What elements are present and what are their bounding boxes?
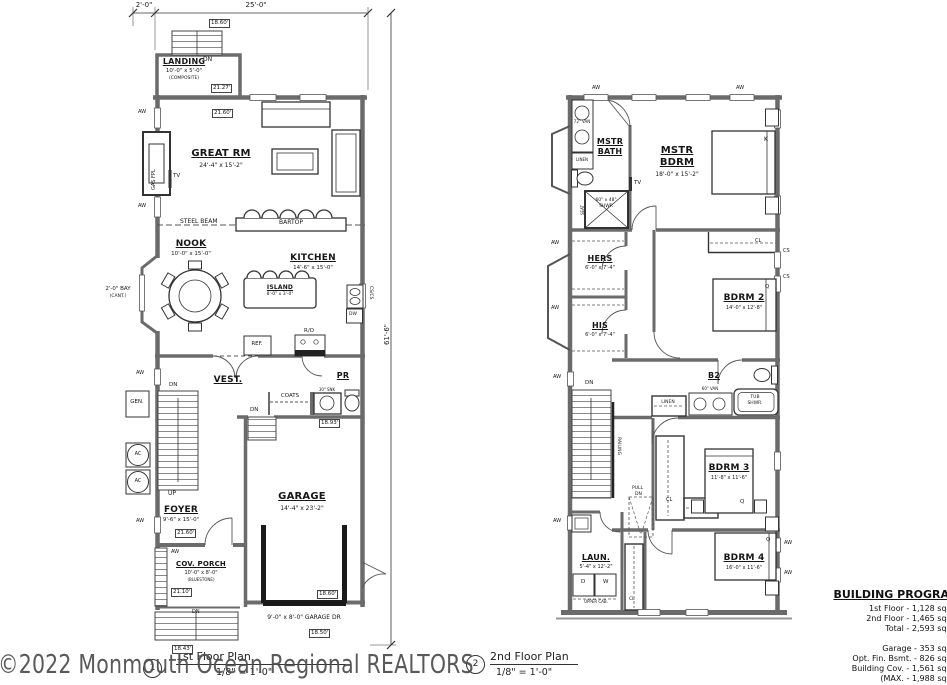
- bay-label2: (CANT.): [110, 295, 127, 300]
- room-laun: LAUN.: [582, 554, 610, 562]
- van60-label: 60" VAN: [702, 387, 718, 391]
- king-bed-label: K: [764, 137, 768, 143]
- building-program-title: BUILDING PROGRAM: [822, 588, 947, 601]
- room-garage: GARAGE: [278, 492, 326, 503]
- room-his: HIS: [592, 322, 608, 330]
- shwr-label: SHWR: [599, 205, 613, 210]
- shwr-size-label: 60" x 48": [595, 199, 616, 204]
- dn-label-landing: DN: [203, 57, 212, 63]
- ref-label: REF.: [251, 342, 262, 348]
- dn-label-porch: DN: [192, 610, 200, 615]
- building-program: BUILDING PROGRAM 1st Floor - 1,128 sq. f…: [822, 588, 947, 684]
- room-kitchen: KITCHEN: [290, 254, 336, 263]
- program-line: 1st Floor - 1,128 sq. ft.: [822, 604, 947, 614]
- elev-box: 21.27': [211, 84, 232, 93]
- aw-label: AW: [136, 371, 144, 376]
- floorplan-sheet: 2'-0" 25'-0" 61'-6" LANDING 10'-0" x 5'-…: [0, 0, 947, 685]
- plan-linework: [0, 0, 947, 685]
- nook-table: [161, 261, 228, 331]
- floor2-beds: [692, 109, 779, 595]
- aw-label: AW: [784, 541, 792, 546]
- room-landing-size: 10'-0" x 5'-0": [166, 69, 202, 75]
- elev-box: 21.60': [175, 529, 196, 538]
- washer-label: W: [603, 580, 608, 586]
- aw-label: AW: [736, 86, 744, 91]
- room-great: GREAT RM: [191, 149, 250, 160]
- aw-label: AW: [171, 550, 179, 555]
- program-line: Total - 2,593 sq. ft.: [822, 624, 947, 634]
- gas-fpl-label: GAS FPL: [152, 169, 157, 190]
- room-nook: NOOK: [176, 240, 207, 249]
- up-label: UP: [168, 491, 176, 497]
- elev-box: 18.93': [319, 419, 340, 428]
- great-room-furniture: [262, 102, 360, 196]
- room-laun-size: 5'-4" x 12'-2": [579, 565, 612, 570]
- steel-beam-label: STEEL BEAM: [180, 219, 218, 225]
- upper-cab-label: UPPER CAB.: [584, 600, 608, 604]
- elev-box: 18.60': [209, 19, 230, 28]
- gen-label: GEN.: [130, 400, 144, 406]
- cscs-label: CS/CS: [367, 286, 372, 300]
- aw-label: AW: [138, 204, 146, 209]
- ac-label-1: AC: [135, 452, 142, 457]
- cl-label: CL: [666, 498, 672, 503]
- queen-bed-label: Q: [766, 538, 770, 544]
- room-great-size: 24'-4" x 15'-2": [199, 163, 242, 169]
- aw-label: AW: [784, 571, 792, 576]
- queen-bed-label: Q: [740, 500, 744, 506]
- room-mbath-1: MSTR: [597, 138, 623, 146]
- cl-label: CL: [755, 239, 761, 244]
- dryer-label: D: [581, 580, 585, 586]
- room-landing-note: (COMPOSITE): [169, 77, 199, 82]
- room-nook-size: 10'-0" x 15'-0": [171, 252, 211, 258]
- garage-door-label: 9'-0" x 8'-0" GARAGE DR: [267, 615, 341, 621]
- room-bdrm2: BDRM 2: [724, 294, 765, 303]
- cl-label: CL: [629, 598, 635, 603]
- queen-bed-label: Q: [765, 285, 769, 291]
- room-vest: VEST.: [214, 376, 243, 385]
- room-mbdrm-2: BDRM: [660, 158, 694, 169]
- room-mbdrm-1: MSTR: [661, 146, 693, 157]
- snk-label: 30" SNK: [319, 388, 335, 392]
- elev-box: 21.10': [171, 588, 192, 597]
- pull-dn-label-1: PULL: [632, 487, 643, 492]
- room-kitchen-size: 14'-6" x 15'-0": [293, 266, 333, 272]
- dim-top-left: 2'-0": [136, 2, 153, 9]
- room-hers: HERS: [588, 255, 613, 263]
- pull-dn-label-2: DN: [635, 493, 642, 498]
- tv-label-f2: TV: [634, 181, 641, 187]
- elev-box: 18.50': [309, 629, 330, 638]
- room-mbdrm-size: 18'-0" x 15'-2": [655, 172, 698, 178]
- dim-right: 61'-6": [384, 324, 391, 345]
- room-foyer-size: 9'-6" x 15'-0": [163, 518, 199, 524]
- railing-label: RAILING: [615, 437, 620, 455]
- ro-label: R/O: [304, 329, 314, 335]
- cs-label: CS: [783, 249, 790, 254]
- dn-label-stairs: DN: [169, 383, 177, 389]
- room-bdrm3-size: 11'-8" x 11'-6": [711, 476, 747, 481]
- tub-label-1: TUB: [750, 396, 759, 401]
- plan2-scale: 1/8" = 1'-0": [496, 667, 552, 678]
- cs-label: CS: [783, 275, 790, 280]
- aw-label: AW: [136, 519, 144, 524]
- seat-label: SEAT: [581, 205, 585, 215]
- aw-label: AW: [592, 86, 600, 91]
- island-size: 8'-0" x 3'-0": [267, 293, 294, 298]
- aw-label: AW: [551, 241, 559, 246]
- bartop-label: BARTOP: [279, 220, 303, 226]
- program-line: Building Cov. - 1,561 sq. ft.: [822, 664, 947, 674]
- room-hers-size: 6'-0" x 7'-4": [585, 266, 615, 271]
- room-landing: LANDING: [163, 58, 205, 66]
- room-b2: B2: [708, 372, 720, 380]
- program-line: 2nd Floor - 1,465 sq. ft.: [822, 614, 947, 624]
- aw-label: AW: [553, 519, 561, 524]
- room-bdrm4: BDRM 4: [724, 554, 765, 563]
- dw-label: DW: [349, 313, 357, 318]
- fireplace: [143, 132, 172, 195]
- program-line: (MAX. - 1,988 sq. ft.: [822, 674, 947, 684]
- ac-label-2: AC: [135, 479, 142, 484]
- coats-label: COATS: [281, 394, 299, 400]
- aw-label: AW: [138, 110, 146, 115]
- room-mbath-2: BATH: [598, 148, 623, 156]
- island-label: ISLAND: [267, 285, 293, 291]
- tub-label-2: SHWR.: [747, 402, 762, 407]
- room-porch: COV. PORCH: [176, 561, 226, 568]
- plan2-title: 2nd Floor Plan: [490, 650, 578, 665]
- aw-label: AW: [551, 306, 559, 311]
- linen-label-b2: LINEN: [661, 401, 674, 406]
- dn-label-garage-steps: DN: [250, 408, 258, 414]
- room-bdrm2-size: 14'-0" x 12'-8": [726, 306, 762, 311]
- room-pr: PR: [337, 372, 349, 380]
- copyright-watermark: ©2022 Monmouth Ocean Regional REALTORS: [0, 649, 474, 679]
- van72-label: 72" VAN: [574, 120, 590, 124]
- room-his-size: 6'-0" x 7'-4": [585, 333, 615, 338]
- room-garage-size: 14'-4" x 23'-2": [280, 506, 323, 512]
- room-porch-note: (BLUESTONE): [188, 578, 215, 582]
- dim-top-main: 25'-0": [245, 2, 266, 9]
- linen-label-mbath: LINEN: [576, 158, 588, 162]
- floor1-stair-arrows: [178, 31, 197, 640]
- program-line: Garage - 353 sq. ft.: [822, 644, 947, 654]
- bay-label: 2'-0" BAY: [105, 287, 130, 293]
- dn-label-stairs2: DN: [585, 381, 593, 387]
- tv-label-f1: TV: [173, 174, 180, 180]
- elev-box: 18.60': [317, 590, 338, 599]
- room-foyer: FOYER: [164, 506, 198, 515]
- elev-box: 21.60': [212, 109, 233, 118]
- room-porch-size: 10'-0" x 8'-0": [184, 571, 217, 576]
- room-bdrm4-size: 16'-0" x 11'-6": [726, 566, 762, 571]
- aw-label: AW: [553, 375, 561, 380]
- program-line: Opt. Fin. Bsmt. - 826 sq. ft.: [822, 654, 947, 664]
- room-bdrm3: BDRM 3: [709, 464, 750, 473]
